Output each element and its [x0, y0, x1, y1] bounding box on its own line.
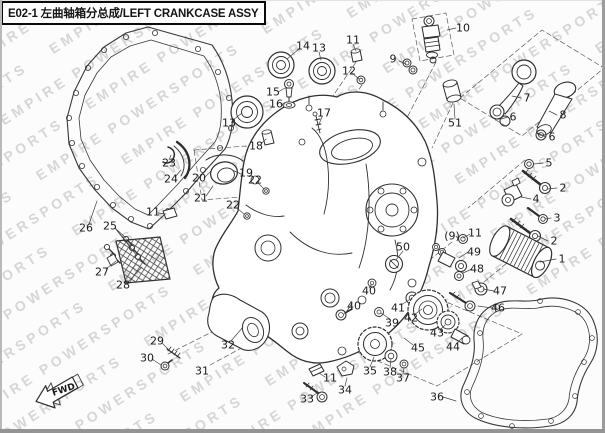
page-edge-bottom: [0, 429, 605, 433]
part-callout: 48: [470, 264, 484, 275]
part-callout: 32: [221, 340, 235, 351]
part-callout: 11: [346, 35, 360, 46]
part-callout: 15: [266, 87, 280, 98]
part-callout: 36: [430, 392, 444, 403]
part-callout: 40: [347, 301, 361, 312]
part-callout: 28: [116, 280, 130, 291]
diagram-title: E02-1 左曲轴箱分总成/LEFT CRANKCASE ASSY: [1, 1, 266, 25]
part-callout: 11: [146, 207, 160, 218]
part-callout: 37: [396, 373, 410, 384]
oil-cooler: [107, 237, 170, 283]
part-callout: 11: [323, 373, 337, 384]
part-callout: 2: [560, 183, 567, 194]
part-callout: 21: [194, 193, 208, 204]
part-callout: 40: [362, 286, 376, 297]
part-callout: 33: [300, 394, 314, 405]
part-callout: 10: [456, 23, 470, 34]
part-callout: 18: [249, 141, 263, 152]
gasket-left: [66, 27, 233, 229]
part-callout: 14: [296, 41, 310, 52]
part-callout: 43: [430, 328, 444, 339]
part-callout: 2: [551, 236, 558, 247]
part-callout: 23: [162, 158, 176, 169]
part-callout: 4: [533, 194, 540, 205]
connecting-rod-group: [490, 60, 578, 140]
part-callout: 44: [446, 342, 460, 353]
part-callout: 25: [103, 221, 117, 232]
part-callout: 22: [226, 200, 240, 211]
part-callout: 6: [549, 132, 556, 143]
part-callout: 13: [312, 43, 326, 54]
part-callout: 26: [79, 223, 93, 234]
part-callout: 41: [391, 303, 405, 314]
part-callout: 45: [411, 343, 425, 354]
part-callout: 42: [404, 313, 418, 324]
part-callout: 20: [192, 173, 206, 184]
part-callout: 31: [195, 366, 209, 377]
fwd-arrow: FWD: [32, 374, 87, 413]
page-edge-left: [0, 0, 2, 433]
part-callout: 22: [248, 175, 262, 186]
part-callout: 49: [467, 247, 481, 258]
part-callout: 8: [560, 110, 567, 121]
part-callout: 35: [363, 366, 377, 377]
part-callout: 17: [317, 108, 331, 119]
part-callout: 12: [342, 66, 356, 77]
part-callout: 27: [95, 267, 109, 278]
part-callout: 11: [468, 228, 482, 239]
part-callout: 9: [390, 54, 397, 65]
part-callout: 38: [383, 367, 397, 378]
parts-catalog-page: EMPIRE POWERSPORTS EMPIRE POWERSPORTS EM…: [0, 0, 605, 433]
part-callout: 5: [546, 158, 553, 169]
part-callout: 46: [491, 303, 505, 314]
part-callout: (9): [444, 231, 460, 242]
part-callout: 24: [164, 174, 178, 185]
part-callout: 34: [338, 385, 352, 396]
part-callout: 29: [150, 336, 164, 347]
part-callout: 51: [448, 118, 462, 129]
part-callout: 47: [493, 286, 507, 297]
exploded-diagram: FWD: [0, 0, 605, 433]
part-callout: 6: [510, 112, 517, 123]
part-callout: 16: [269, 99, 283, 110]
part-callout: 1: [559, 254, 566, 265]
part-callout: 7: [524, 93, 531, 104]
part-callout: 30: [140, 353, 154, 364]
gasket-right: [461, 298, 597, 428]
part-callout: 39: [385, 318, 399, 329]
part-callout: 3: [554, 213, 561, 224]
part-callout: 50: [396, 242, 410, 253]
page-edge-top: [0, 0, 605, 1]
part-callout: 13: [222, 118, 236, 129]
spring-and-bolt: [161, 347, 180, 370]
